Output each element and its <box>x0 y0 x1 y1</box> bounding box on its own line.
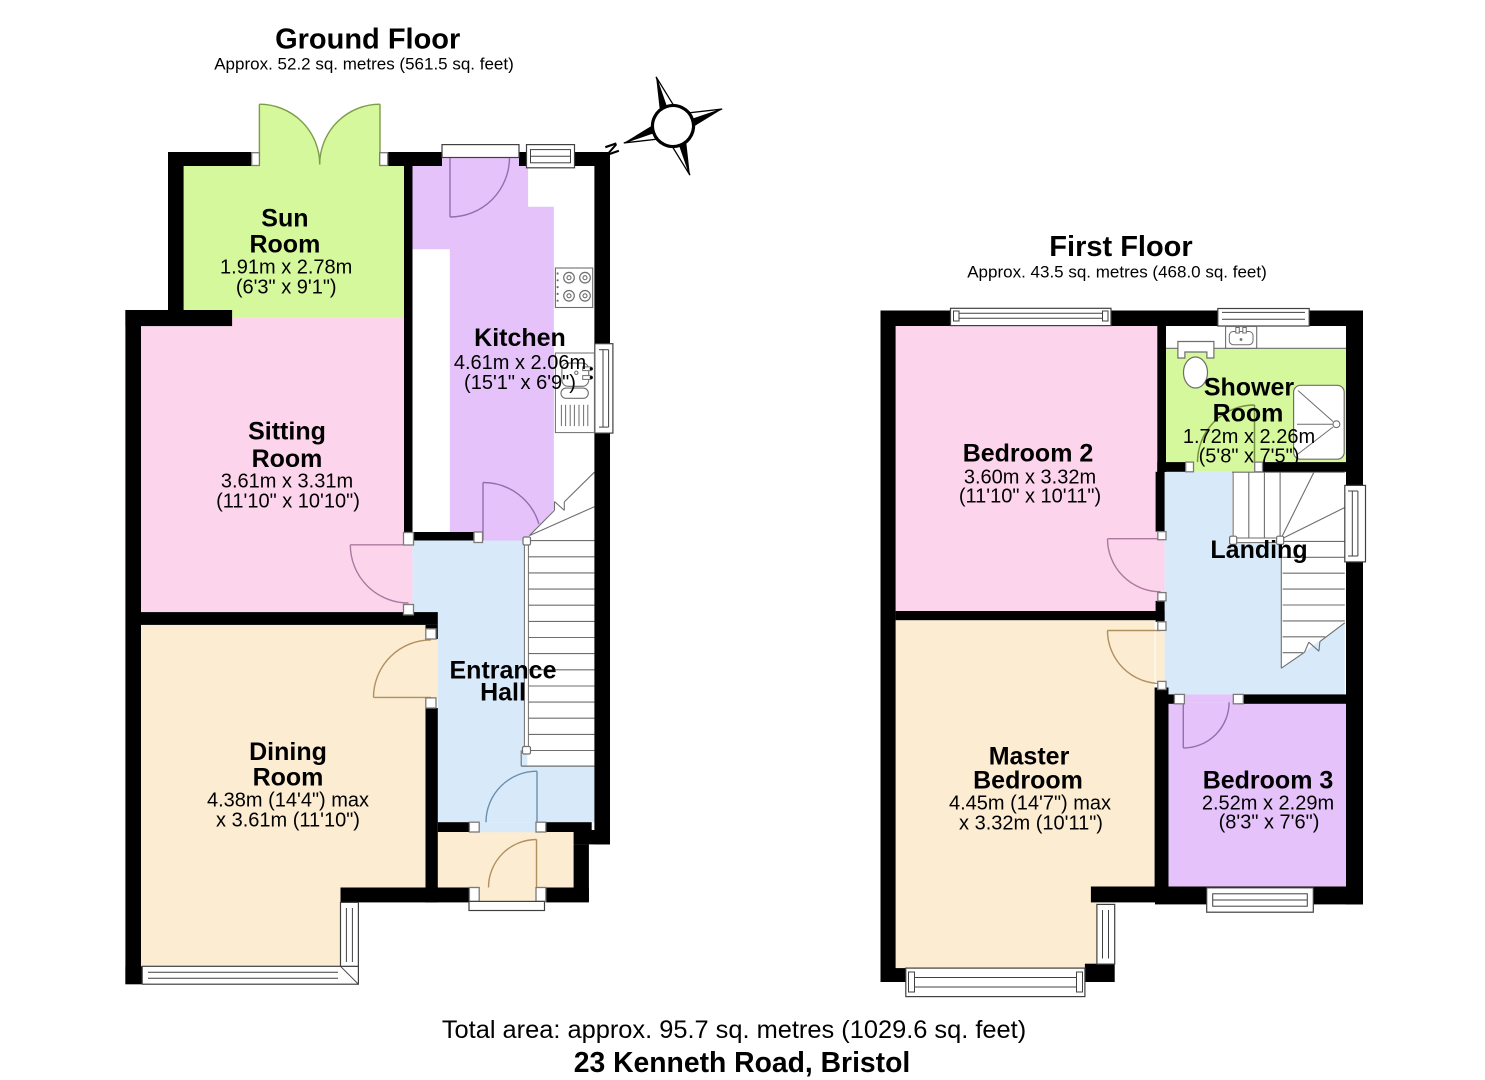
svg-text:4.45m (14'7") max: 4.45m (14'7") max <box>949 793 1111 815</box>
svg-text:23 Kenneth Road, Bristol: 23 Kenneth Road, Bristol <box>574 1046 910 1078</box>
svg-text:(11'10" x 10'10"): (11'10" x 10'10") <box>216 491 360 513</box>
svg-text:4.38m (14'4") max: 4.38m (14'4") max <box>207 790 369 812</box>
svg-text:Total area: approx. 95.7 sq. m: Total area: approx. 95.7 sq. metres (102… <box>442 1016 1026 1044</box>
svg-text:(11'10" x 10'11"): (11'10" x 10'11") <box>959 486 1101 508</box>
svg-text:(15'1" x 6'9"): (15'1" x 6'9") <box>464 372 576 394</box>
svg-text:Kitchen: Kitchen <box>474 324 566 352</box>
svg-text:x 3.32m (10'11"): x 3.32m (10'11") <box>959 812 1103 834</box>
svg-text:Approx. 43.5 sq. metres (468.0: Approx. 43.5 sq. metres (468.0 sq. feet) <box>967 263 1267 282</box>
svg-text:3.61m x 3.31m: 3.61m x 3.31m <box>221 471 353 493</box>
svg-text:4.61m x 2.06m: 4.61m x 2.06m <box>454 352 586 374</box>
svg-text:Approx. 52.2 sq. metres (561.5: Approx. 52.2 sq. metres (561.5 sq. feet) <box>214 55 514 74</box>
svg-text:Shower: Shower <box>1204 374 1295 402</box>
svg-text:Dining: Dining <box>249 738 327 766</box>
svg-text:Room: Room <box>253 764 324 792</box>
svg-text:Hall: Hall <box>480 679 526 707</box>
svg-text:(6'3" x 9'1"): (6'3" x 9'1") <box>236 276 337 298</box>
svg-text:x 3.61m (11'10"): x 3.61m (11'10") <box>216 810 360 832</box>
svg-text:Sitting: Sitting <box>248 418 326 446</box>
svg-text:Room: Room <box>1213 399 1284 427</box>
svg-text:Bedroom: Bedroom <box>973 767 1083 795</box>
svg-text:Landing: Landing <box>1210 536 1307 564</box>
svg-text:First Floor: First Floor <box>1049 231 1192 263</box>
svg-text:Room: Room <box>252 445 323 473</box>
svg-text:(5'8" x 7'5"): (5'8" x 7'5") <box>1199 446 1300 468</box>
svg-text:Bedroom 2: Bedroom 2 <box>963 439 1094 467</box>
svg-text:(8'3" x 7'6"): (8'3" x 7'6") <box>1219 812 1320 834</box>
svg-text:Room: Room <box>249 231 320 259</box>
svg-text:Ground Floor: Ground Floor <box>275 24 460 56</box>
svg-text:Bedroom 3: Bedroom 3 <box>1203 766 1334 794</box>
svg-text:1.91m x 2.78m: 1.91m x 2.78m <box>220 256 352 278</box>
svg-text:Sun: Sun <box>261 205 308 233</box>
